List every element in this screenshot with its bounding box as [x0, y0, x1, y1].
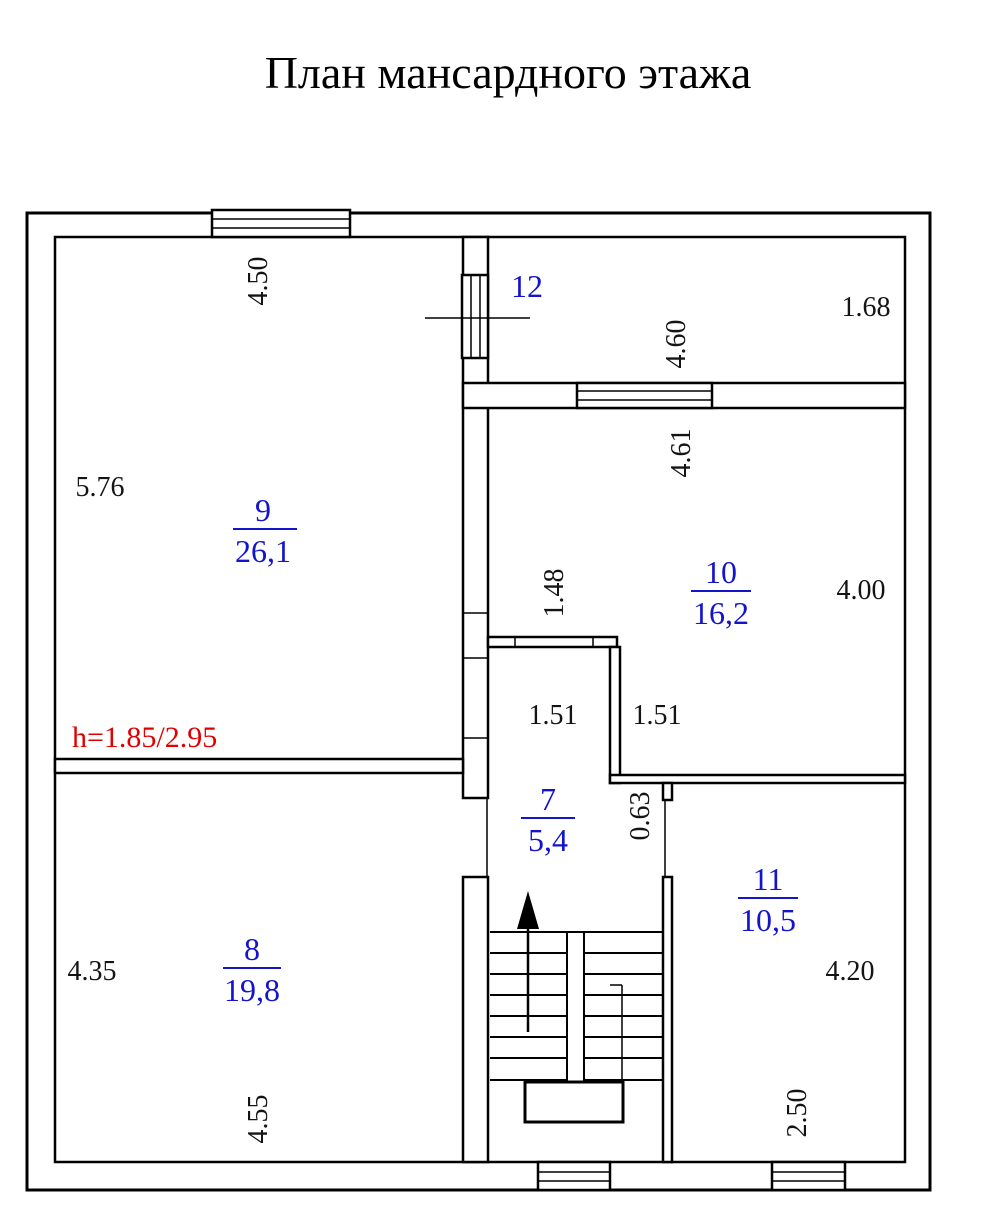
room-7-number: 7: [540, 781, 556, 817]
wall-corridor-right: [610, 647, 620, 783]
window-room12-room10: [577, 383, 712, 408]
window-bottom-left: [538, 1162, 610, 1190]
interior-walls: [55, 237, 905, 1162]
room-9-number: 9: [255, 492, 271, 528]
dim-corridor-width: 1.48: [539, 569, 570, 618]
room-10-number: 10: [705, 554, 737, 590]
height-note: h=1.85/2.95: [72, 721, 217, 754]
dim-room8-left: 4.35: [68, 956, 117, 987]
room-11-number: 11: [753, 861, 784, 897]
dim-room9-top: 4.50: [243, 257, 274, 306]
room-7-area: 5,4: [528, 822, 568, 858]
dim-room11-height: 4.20: [826, 956, 875, 987]
wall-room11-left-stub: [663, 783, 672, 800]
room-label-7: 7 5,4: [521, 781, 575, 858]
dim-room8-bottom: 4.55: [243, 1095, 274, 1144]
dim-room12-width: 4.60: [661, 320, 692, 369]
page-title: План мансардного этажа: [265, 47, 752, 98]
dim-passage-width: 0.63: [625, 792, 656, 841]
dim-corridor-left: 1.51: [529, 700, 578, 731]
wall-corridor-top: [488, 637, 617, 647]
stairs-up-arrow: [517, 891, 539, 1032]
stair-stringer: [567, 932, 584, 1082]
room-label-10: 10 16,2: [691, 554, 751, 631]
room-label-12: 12: [511, 268, 543, 304]
window-bottom-right: [772, 1162, 845, 1190]
wall-room11-left: [663, 877, 672, 1162]
dim-corridor-right: 1.51: [633, 700, 682, 731]
room-11-area: 10,5: [740, 902, 796, 938]
room-8-number: 8: [244, 931, 260, 967]
dim-room9-left: 5.76: [76, 472, 125, 503]
wall-room10-room11: [610, 775, 905, 783]
room-9-area: 26,1: [235, 533, 291, 569]
dim-room10-width: 4.61: [666, 429, 697, 478]
room-label-11: 11 10,5: [738, 861, 798, 938]
wall-central-lower: [463, 877, 488, 1162]
wall-room9-room8: [55, 759, 463, 773]
room-10-area: 16,2: [693, 595, 749, 631]
room-label-8: 8 19,8: [223, 931, 281, 1008]
floor-plan-page: План мансардного этажа: [0, 0, 981, 1217]
room-label-9: 9 26,1: [233, 492, 297, 569]
dim-room11-width: 2.50: [782, 1089, 813, 1138]
staircase: [490, 891, 663, 1122]
floor-plan-drawing: План мансардного этажа: [0, 0, 981, 1217]
dim-room10-height: 4.00: [837, 575, 886, 606]
room-12-number: 12: [511, 268, 543, 304]
window-top: [212, 210, 350, 237]
stair-landing: [525, 1082, 623, 1122]
room-8-area: 19,8: [224, 972, 280, 1008]
dim-room12-height: 1.68: [842, 292, 891, 323]
